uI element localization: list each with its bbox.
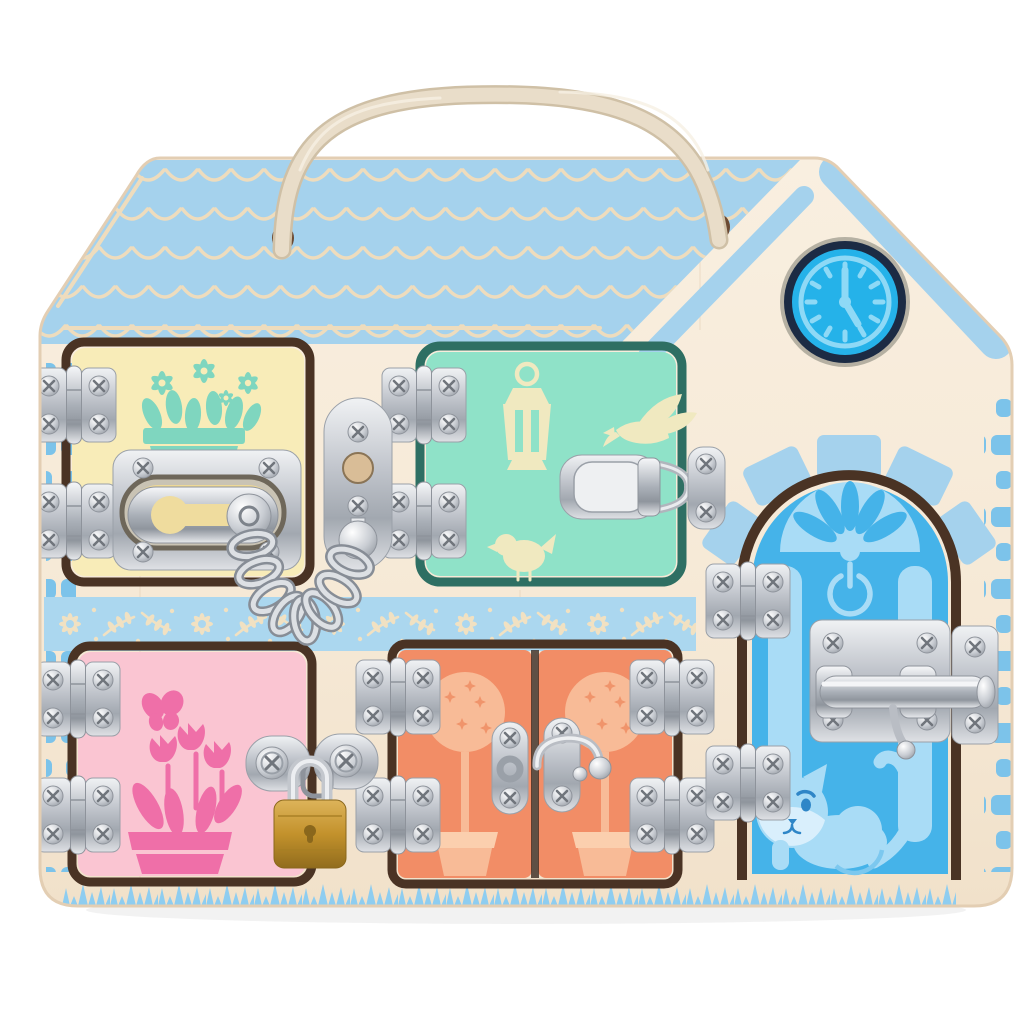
barrel-bolt-latch[interactable]: [810, 620, 998, 759]
wall-chain-plate[interactable]: [324, 398, 392, 570]
bolt-handle-knob[interactable]: [897, 741, 915, 759]
bolt-rod[interactable]: [820, 676, 988, 708]
toggle-latch[interactable]: [560, 447, 725, 529]
latch-keeper: [688, 447, 725, 529]
busy-board: [0, 0, 1024, 1024]
busy-board-photo: [0, 0, 1024, 1024]
clock-face: [780, 237, 910, 367]
